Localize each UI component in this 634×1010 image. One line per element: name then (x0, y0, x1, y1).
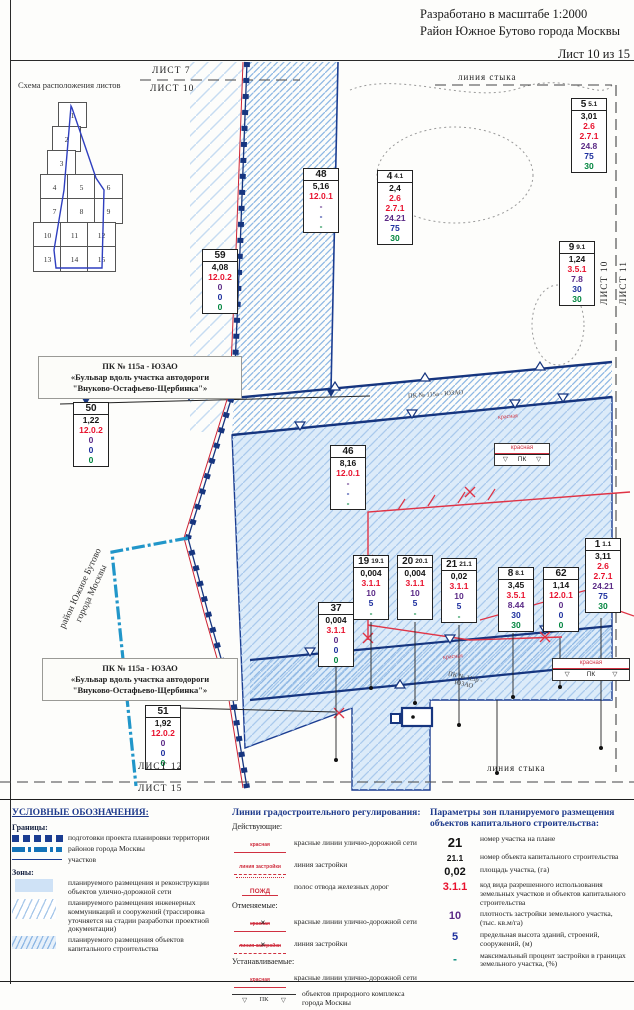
parcel-value: 1,92 (146, 718, 180, 728)
legend-item: подготовки проекта планировки территории (12, 834, 228, 843)
legend: УСЛОВНЫЕ ОБОЗНАЧЕНИЯ: Границы: подготовк… (0, 800, 634, 981)
parcel-value: 30 (572, 161, 606, 171)
legend-title: УСЛОВНЫЕ ОБОЗНАЧЕНИЯ: (12, 808, 228, 819)
parcel-value: 12.0.2 (203, 272, 237, 282)
object-number: 4.1 (394, 173, 403, 180)
sheet-schema: 123456789101112131415 (14, 90, 144, 285)
parcel-box-51: 511,9212.0.2000 (145, 705, 181, 770)
parcel-value: 12.0.1 (544, 590, 578, 600)
line-marker-box-1: красная ▽ПК▽ (494, 443, 550, 466)
parcel-value: 2.7.1 (586, 571, 620, 581)
parcel-value: 5,16 (304, 181, 338, 191)
parcel-box-1: 11.13,112.62.7.124.217530 (585, 538, 621, 613)
parcel-value: 24.21 (586, 581, 620, 591)
parcel-value: 3,45 (499, 580, 533, 590)
legend-item: планируемого размещения и реконструкции … (12, 879, 228, 897)
parcel-value: 2.7.1 (572, 131, 606, 141)
parcel-value: 0 (319, 635, 353, 645)
sheet-schema-outline (14, 90, 144, 285)
legend-item: планируемого размещения объектов капитал… (12, 936, 228, 954)
legend-item: красная × красные линии улично-дорожной … (232, 912, 426, 932)
parcel-value: 10 (442, 591, 476, 601)
legend-subgroup-active: Действующие: (232, 822, 426, 831)
parcel-value: - (331, 498, 365, 508)
parcel-value: 0 (319, 655, 353, 665)
plan-map: Схема расположения листов 12345678910111… (0, 60, 634, 800)
red-line-sample-icon: красная (232, 833, 294, 853)
parcel-box-4: 44.12,42.62.7.124.217530 (377, 170, 413, 245)
legend-item: линия застройки линия застройки (232, 855, 426, 875)
parcel-number: 2121.1 (442, 559, 476, 571)
parcel-value: 0 (544, 620, 578, 630)
parcel-value: - (331, 488, 365, 498)
road-zone-fill-icon (12, 879, 68, 892)
triangle-icon: ▽ (281, 996, 286, 1004)
boundary-squares-icon (12, 835, 68, 842)
parcel-value: 1,14 (544, 580, 578, 590)
sheet-schema-title: Схема расположения листов (18, 80, 121, 90)
object-number: 9.1 (576, 244, 585, 251)
parcel-value: 30 (560, 284, 594, 294)
pk-115a-callout-2: ПК № 115а - ЮЗАО «Бульвар вдоль участка … (42, 658, 238, 701)
object-number: 5.1 (588, 101, 597, 108)
join-line-label-top: линия стыка (458, 72, 517, 82)
scale-note: Разработано в масштабе 1:2000 (420, 6, 630, 23)
parcel-box-5: 55.13,012.62.7.124.87530 (571, 98, 607, 173)
parcel-value: 0 (319, 645, 353, 655)
parcel-value: 30 (499, 610, 533, 620)
parcel-value: 0 (146, 738, 180, 748)
parcel-boundary-icon (12, 859, 68, 860)
parcel-value: - (398, 608, 432, 618)
parcel-value: 0 (146, 748, 180, 758)
parcel-number: 44.1 (378, 171, 412, 183)
building-line-sample-icon: линия застройки (232, 855, 294, 875)
parcel-value: 0 (74, 445, 108, 455)
parcel-value: 10 (354, 588, 388, 598)
parcel-value: 0,004 (398, 568, 432, 578)
parcel-value: 3.1.1 (354, 578, 388, 588)
parcel-value: 12.0.2 (146, 728, 180, 738)
legend-subgroup-cancelled: Отменяемые: (232, 901, 426, 910)
parcel-box-62: 621,1412.0.1000 (543, 567, 579, 632)
legend-symbols-column: УСЛОВНЫЕ ОБОЗНАЧЕНИЯ: Границы: подготовк… (12, 808, 228, 956)
parcel-box-50: 501,2212.0.2000 (73, 402, 109, 467)
legend-parameters-title: Параметры зон планируемого размещения об… (430, 808, 630, 830)
triangle-icon: ▽ (503, 455, 508, 465)
parcel-value: 3.5.1 (560, 264, 594, 274)
parcel-value: 2,4 (378, 183, 412, 193)
sheet-label-15: ЛИСТ 15 (138, 784, 182, 794)
legend-item: 5предельная высота зданий, строений, соо… (430, 931, 630, 949)
parcel-value: 5 (354, 598, 388, 608)
parcel-box-46: 468,1612.0.1--- (330, 445, 366, 510)
parcel-value: 30 (560, 294, 594, 304)
legend-item: 0,02площадь участка, (га) (430, 866, 630, 878)
legend-item: 10плотность застройки земельного участка… (430, 910, 630, 928)
parcel-value: 0,004 (319, 615, 353, 625)
triangle-icon: ▽ (242, 996, 247, 1004)
sheet-label-10-right: ЛИСТ 10 (600, 261, 610, 305)
parcel-number: 46 (331, 446, 365, 458)
parcel-value: 12.0.2 (74, 425, 108, 435)
object-number: 19.1 (371, 558, 384, 565)
parcel-value: 0 (74, 455, 108, 465)
parcel-value: 8,16 (331, 458, 365, 468)
parcel-box-21: 2121.10,023.1.1105- (441, 558, 477, 623)
parcel-value: - (304, 211, 338, 221)
parcel-number: 2020.1 (398, 556, 432, 568)
parcel-value: 0 (203, 302, 237, 312)
parcel-value: 0 (203, 292, 237, 302)
object-number: 8.1 (515, 570, 524, 577)
legend-lines-title: Линии градостроительного регулирования: (232, 808, 426, 819)
natural-complex-line-icon: ▽ ПК ▽ (232, 994, 296, 1004)
parcel-value: 0 (74, 435, 108, 445)
object-number: 20.1 (415, 558, 428, 565)
legend-lines-column: Линии градостроительного регулирования: … (232, 808, 426, 1010)
sheet-label-11-right: ЛИСТ 11 (619, 261, 629, 305)
legend-item: 3.1.1код вида разрешенного использования… (430, 881, 630, 907)
parcel-value: 5 (398, 598, 432, 608)
parcel-value: 0 (544, 600, 578, 610)
parcel-value: 24.8 (572, 141, 606, 151)
railway-right-of-way-icon: ПОЖД (232, 877, 294, 898)
parcel-number: 59 (203, 250, 237, 262)
parcel-value: 75 (572, 151, 606, 161)
parcel-value: 0 (203, 282, 237, 292)
parcel-box-19: 1919.10,0043.1.1105- (353, 555, 389, 620)
parcel-value: - (331, 478, 365, 488)
parcel-value: 2.7.1 (378, 203, 412, 213)
parcel-value: 2.6 (572, 121, 606, 131)
sheet-label-12: ЛИСТ 12 (138, 762, 182, 772)
x-mark-icon: × (260, 941, 265, 950)
parcel-value: 3.1.1 (398, 578, 432, 588)
parcel-number: 11.1 (586, 539, 620, 551)
parcel-value: - (442, 611, 476, 621)
parcel-value: 0,004 (354, 568, 388, 578)
parcel-value: - (304, 221, 338, 231)
legend-item: участков (12, 856, 228, 865)
parcel-value: 1,22 (74, 415, 108, 425)
legend-item: -максимальный процент застройки в границ… (430, 952, 630, 970)
parcel-value: 3,11 (586, 551, 620, 561)
parcel-value: 5 (442, 601, 476, 611)
parcel-value: 3.1.1 (442, 581, 476, 591)
parcel-value: 0,02 (442, 571, 476, 581)
line-marker-box-2: красная ▽ПК▽ (552, 658, 630, 681)
legend-item: 21.1номер объекта капитального строитель… (430, 853, 630, 863)
legend-subgroup-established: Устанавливаемые: (232, 957, 426, 966)
parcel-value: 12.0.1 (304, 191, 338, 201)
cancelled-red-line-icon: красная × (232, 912, 294, 932)
parcel-box-20: 2020.10,0043.1.1105- (397, 555, 433, 620)
triangle-icon: ▽ (612, 670, 617, 680)
cancelled-building-line-icon: линия застройки × (232, 934, 294, 954)
legend-item: ▽ ПК ▽ объектов природного комплекса гор… (232, 990, 426, 1008)
legend-item: линия застройки × линия застройки (232, 934, 426, 954)
district-boundary-icon (12, 847, 68, 852)
parcel-value: 75 (586, 591, 620, 601)
triangle-icon: ▽ (565, 670, 570, 680)
parcel-number: 51 (146, 706, 180, 718)
legend-item: ПОЖД полос отвода железных дорог (232, 877, 426, 898)
parcel-value: 7.8 (560, 274, 594, 284)
sheet-label-7: ЛИСТ 7 (152, 66, 191, 76)
parcel-box-8: 88.13,453.5.18.443030 (498, 567, 534, 632)
parcel-box-59: 594,0812.0.2000 (202, 249, 238, 314)
parcel-value: 30 (586, 601, 620, 611)
legend-item: районов города Москвы (12, 845, 228, 854)
parcel-value: 1,24 (560, 254, 594, 264)
x-mark-icon: × (260, 919, 265, 928)
legend-parameters-column: Параметры зон планируемого размещения об… (430, 808, 630, 972)
parcel-number: 48 (304, 169, 338, 181)
parcel-number: 99.1 (560, 242, 594, 254)
parcel-value: 4,08 (203, 262, 237, 272)
parcel-number: 37 (319, 603, 353, 615)
parcel-number: 1919.1 (354, 556, 388, 568)
object-number: 21.1 (459, 561, 472, 568)
parcel-value: - (304, 201, 338, 211)
object-number: 1.1 (602, 541, 611, 548)
parcel-value: 3.1.1 (319, 625, 353, 635)
parcel-value: - (354, 608, 388, 618)
legend-item: красная красные линии улично-дорожной се… (232, 833, 426, 853)
legend-item: красная красные линии улично-дорожной се… (232, 968, 426, 988)
parcel-number: 62 (544, 568, 578, 580)
join-line-label-bottom: линия стыка (487, 763, 546, 773)
legend-group-zones: Зоны: (12, 868, 228, 877)
established-red-line-icon: красная (232, 968, 294, 988)
utility-zone-hatch-icon (12, 899, 68, 919)
title-block: Разработано в масштабе 1:2000 Район Южно… (420, 6, 630, 63)
legend-item: планируемого размещения инженерных комму… (12, 899, 228, 934)
parcel-value: 8.44 (499, 600, 533, 610)
parcel-value: 75 (378, 223, 412, 233)
parcel-value: 2.6 (586, 561, 620, 571)
parcel-value: 12.0.1 (331, 468, 365, 478)
parcel-number: 55.1 (572, 99, 606, 111)
parcel-value: 3,01 (572, 111, 606, 121)
district-title: Район Южное Бутово города Москвы (420, 23, 630, 40)
parcel-value: 30 (499, 620, 533, 630)
parcel-number: 88.1 (499, 568, 533, 580)
parcel-value: 30 (378, 233, 412, 243)
parcel-value: 2.6 (378, 193, 412, 203)
legend-group-borders: Границы: (12, 823, 228, 832)
capital-construction-hatch-icon (12, 936, 68, 949)
parcel-box-9: 99.11,243.5.17.83030 (559, 241, 595, 306)
pk-115a-callout-1: ПК № 115а - ЮЗАО «Бульвар вдоль участка … (38, 356, 242, 399)
legend-item: 21номер участка на плане (430, 835, 630, 850)
parcel-value: 0 (544, 610, 578, 620)
parcel-box-37: 370,0043.1.1000 (318, 602, 354, 667)
parcel-value: 3.5.1 (499, 590, 533, 600)
parcel-value: 24.21 (378, 213, 412, 223)
triangle-icon: ▽ (536, 455, 541, 465)
sheet-label-10-top: ЛИСТ 10 (150, 84, 194, 94)
parcel-number: 50 (74, 403, 108, 415)
parcel-box-48: 485,1612.0.1--- (303, 168, 339, 233)
parcel-value: 10 (398, 588, 432, 598)
